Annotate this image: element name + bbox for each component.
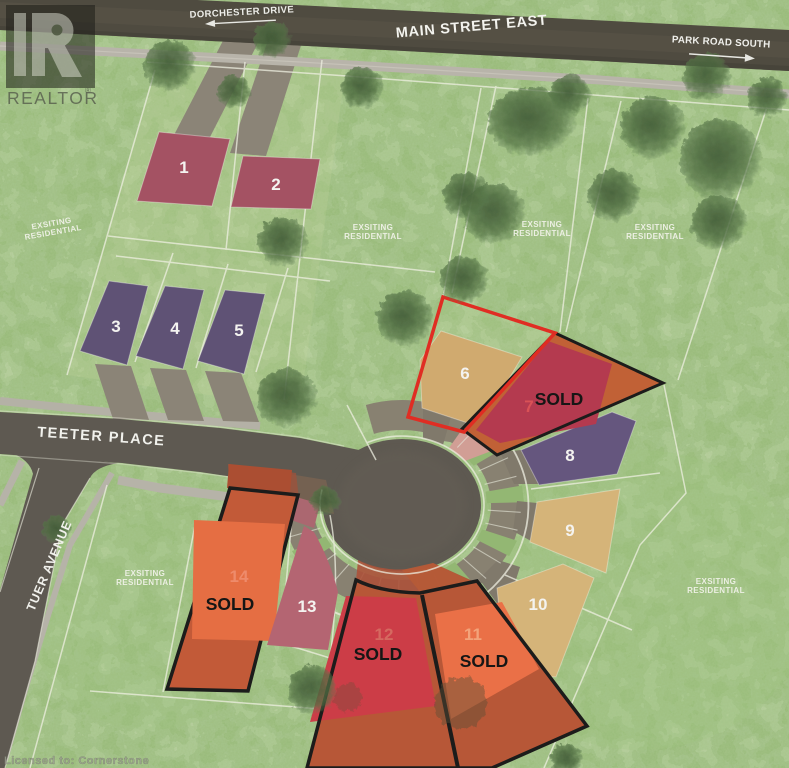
svg-text:Licensed to: Cornerstone: Licensed to: Cornerstone	[4, 755, 149, 767]
svg-text:®: ®	[85, 86, 91, 95]
